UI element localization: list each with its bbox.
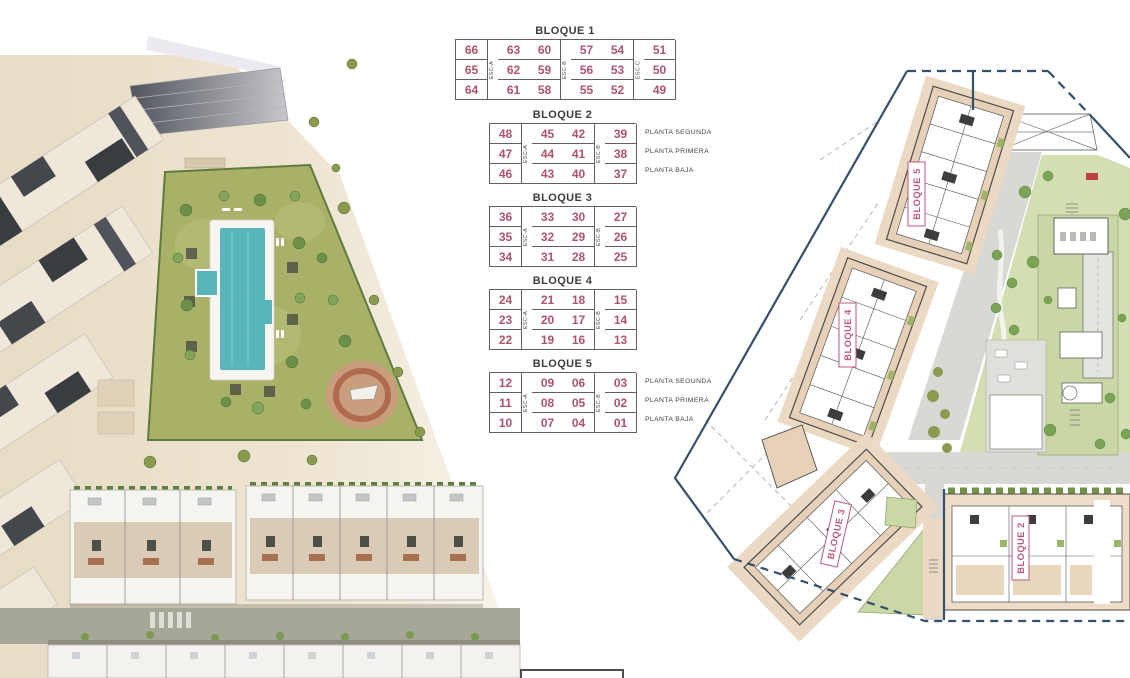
- table-title: BLOQUE 1: [455, 24, 675, 38]
- unit-number: 44: [532, 144, 564, 164]
- unit-number: 50: [644, 60, 676, 80]
- unit-number: 40: [563, 164, 595, 184]
- unit-number: 32: [532, 227, 564, 247]
- unit-number: 04: [563, 413, 595, 433]
- unit-number: 21: [532, 290, 564, 310]
- unit-grid: ESC-AESC-BESC-C6663605754516562595653506…: [455, 39, 675, 100]
- plan-label-bloque-4: BLOQUE 4: [843, 309, 853, 361]
- picnic-pad: [98, 380, 134, 406]
- unit-grid: ESC-AESC-B242118152320171422191613: [489, 289, 636, 350]
- main-pool: [220, 228, 265, 370]
- unit-number: 64: [456, 80, 488, 100]
- unit-number: 59: [529, 60, 561, 80]
- unit-number: 60: [529, 40, 561, 60]
- floor-labels: PLANTA SEGUNDAPLANTA PRIMERAPLANTA BAJA: [645, 123, 712, 180]
- plan-label-bloque-2: BLOQUE 2: [1016, 522, 1026, 574]
- unit-number: 13: [605, 330, 637, 350]
- unit-number: 56: [571, 60, 603, 80]
- unit-number: 34: [490, 247, 522, 267]
- unit-number: 31: [532, 247, 564, 267]
- unit-grid: ESC-AESC-B120906031108050210070401: [489, 372, 636, 433]
- unit-number: 20: [532, 310, 564, 330]
- unit-number: 15: [605, 290, 637, 310]
- cutoff-legend-box: [520, 669, 624, 678]
- picnic-pad: [98, 412, 134, 434]
- unit-number: 38: [605, 144, 637, 164]
- unit-number: 07: [532, 413, 564, 433]
- unit-number: 29: [563, 227, 595, 247]
- unit-number: 61: [498, 80, 530, 100]
- unit-number: 63: [498, 40, 530, 60]
- unit-number: 01: [605, 413, 637, 433]
- unit-number: 42: [563, 124, 595, 144]
- unit-number: 22: [490, 330, 522, 350]
- bloque-2-building: [944, 491, 1130, 610]
- unit-number: 08: [532, 393, 564, 413]
- unit-grid: ESC-AESC-B484542394744413846434037: [489, 123, 636, 184]
- unit-number: 18: [563, 290, 595, 310]
- unit-number: 35: [490, 227, 522, 247]
- unit-grid: ESC-AESC-B363330273532292634312825: [489, 206, 636, 267]
- aerial-render: [0, 36, 525, 678]
- unit-number: 02: [605, 393, 637, 413]
- unit-number: 05: [563, 393, 595, 413]
- floor-label: PLANTA SEGUNDA: [645, 123, 712, 142]
- unit-number: 54: [602, 40, 634, 60]
- garden-pavilion: [185, 158, 225, 168]
- unit-number: 62: [498, 60, 530, 80]
- street: [0, 608, 520, 644]
- floor-label: PLANTA BAJA: [645, 161, 712, 180]
- bloque-1-legend-table: BLOQUE 1 ESC-AESC-BESC-C6663605754516562…: [455, 24, 675, 100]
- bloque-5-legend-table: BLOQUE 5 ESC-AESC-B120906031108050210070…: [489, 357, 636, 433]
- table-title: BLOQUE 2: [489, 108, 636, 122]
- bloque-4-legend-table: BLOQUE 4 ESC-AESC-B242118152320171422191…: [489, 274, 636, 350]
- unit-number: 66: [456, 40, 488, 60]
- table-title: BLOQUE 3: [489, 191, 636, 205]
- unit-number: 25: [605, 247, 637, 267]
- unit-number: 37: [605, 164, 637, 184]
- unit-number: 65: [456, 60, 488, 80]
- unit-number: 03: [605, 373, 637, 393]
- unit-number: 09: [532, 373, 564, 393]
- unit-number: 41: [563, 144, 595, 164]
- bloque-2-legend-table: BLOQUE 2 ESC-AESC-B484542394744413846434…: [489, 108, 636, 184]
- unit-number: 46: [490, 164, 522, 184]
- unit-number: 45: [532, 124, 564, 144]
- floor-label: PLANTA SEGUNDA: [645, 372, 712, 391]
- townhouse-row-upper: [70, 485, 483, 611]
- plan-label-bloque-5: BLOQUE 5: [912, 168, 922, 220]
- unit-number: 24: [490, 290, 522, 310]
- unit-number: 48: [490, 124, 522, 144]
- floor-labels: PLANTA SEGUNDAPLANTA PRIMERAPLANTA BAJA: [645, 372, 712, 429]
- unit-number: 53: [602, 60, 634, 80]
- unit-number: 51: [644, 40, 676, 60]
- floor-label: PLANTA PRIMERA: [645, 391, 712, 410]
- unit-number: 17: [563, 310, 595, 330]
- unit-number: 14: [605, 310, 637, 330]
- floor-label: PLANTA PRIMERA: [645, 142, 712, 161]
- bloque-3-legend-table: BLOQUE 3 ESC-AESC-B363330273532292634312…: [489, 191, 636, 267]
- unit-number: 11: [490, 393, 522, 413]
- unit-number: 10: [490, 413, 522, 433]
- site-plan: BLOQUE 5 BLOQUE 4 BLOQUE 3 BLOQUE 2: [675, 71, 1130, 642]
- playground: [326, 361, 398, 429]
- table-title: BLOQUE 5: [489, 357, 636, 371]
- unit-number: 47: [490, 144, 522, 164]
- unit-number: 19: [532, 330, 564, 350]
- unit-number: 26: [605, 227, 637, 247]
- unit-number: 12: [490, 373, 522, 393]
- unit-number: 23: [490, 310, 522, 330]
- kids-pool: [196, 270, 218, 296]
- red-bench: [1086, 173, 1098, 180]
- floor-label: PLANTA BAJA: [645, 410, 712, 429]
- unit-number: 52: [602, 80, 634, 100]
- parking-pad: [990, 395, 1042, 449]
- unit-number: 30: [563, 207, 595, 227]
- table-title: BLOQUE 4: [489, 274, 636, 288]
- unit-number: 55: [571, 80, 603, 100]
- unit-number: 36: [490, 207, 522, 227]
- unit-number: 28: [563, 247, 595, 267]
- unit-number: 49: [644, 80, 676, 100]
- unit-number: 06: [563, 373, 595, 393]
- unit-number: 33: [532, 207, 564, 227]
- unit-number: 39: [605, 124, 637, 144]
- brochure-page: BLOQUE 5 BLOQUE 4 BLOQUE 3 BLOQUE 2 BLOQ…: [0, 0, 1130, 678]
- unit-number: 57: [571, 40, 603, 60]
- unit-number: 16: [563, 330, 595, 350]
- unit-number: 43: [532, 164, 564, 184]
- unit-number: 58: [529, 80, 561, 100]
- unit-number: 27: [605, 207, 637, 227]
